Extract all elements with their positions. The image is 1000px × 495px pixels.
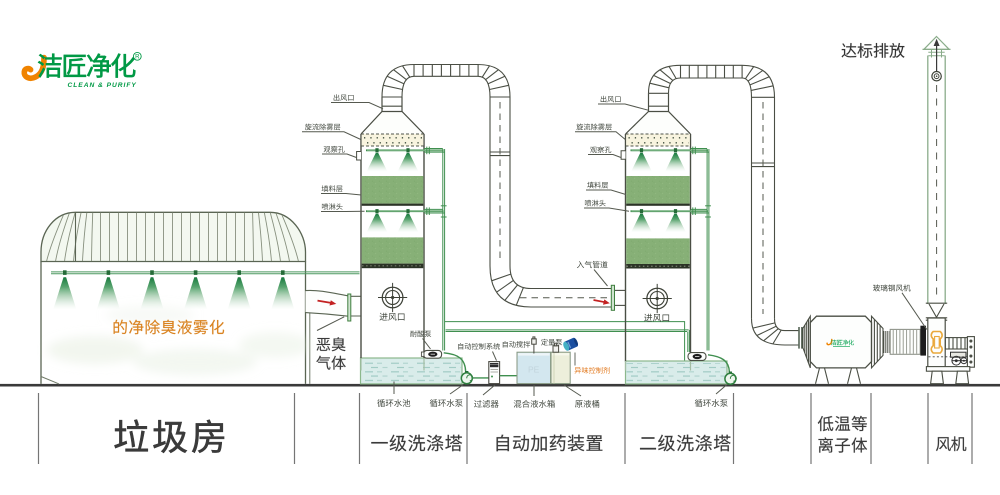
svg-text:PE: PE xyxy=(528,365,540,375)
svg-text:R: R xyxy=(135,55,140,61)
svg-text:CLEAN & PURIFY: CLEAN & PURIFY xyxy=(68,82,137,89)
